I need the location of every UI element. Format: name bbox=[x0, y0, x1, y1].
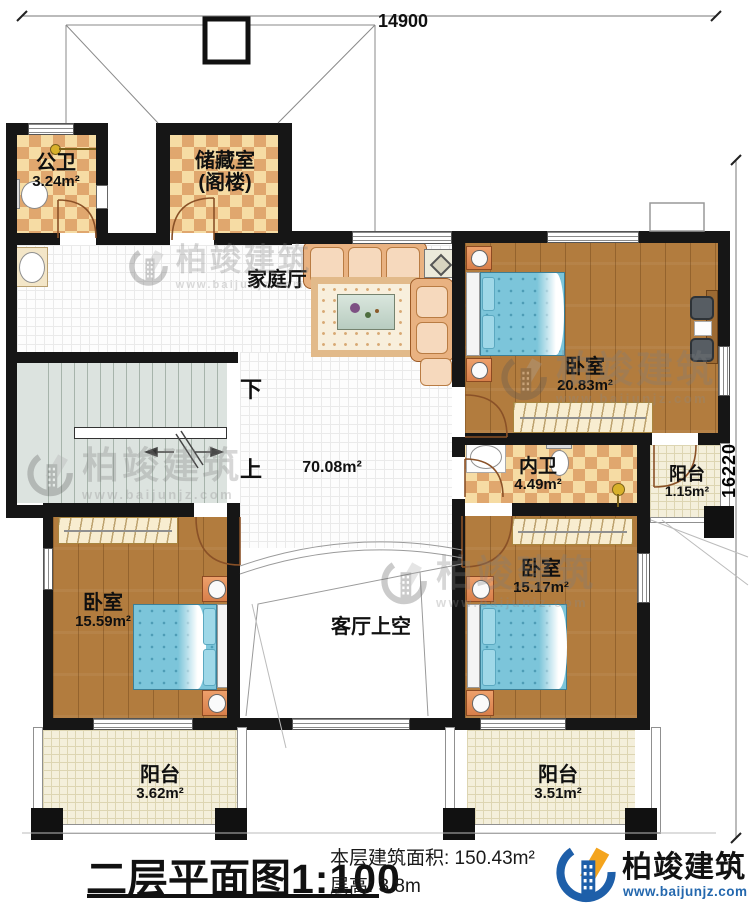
lamp-icon bbox=[208, 694, 226, 713]
door-opening bbox=[465, 503, 512, 516]
room-label-family-hall: 家庭厅 bbox=[230, 269, 324, 291]
lamp-icon bbox=[472, 694, 490, 713]
room-name: 卧室 bbox=[498, 558, 584, 580]
room-area: 15.17m² bbox=[498, 580, 584, 597]
wall bbox=[227, 503, 240, 730]
column bbox=[704, 506, 734, 538]
wall bbox=[637, 516, 650, 718]
nightstand bbox=[202, 576, 230, 602]
hall-area-label: 70.08m² bbox=[294, 459, 370, 477]
pillow bbox=[482, 608, 496, 645]
room-name: 储藏室 bbox=[172, 150, 278, 172]
room-label-public-bath: 公卫 3.24m² bbox=[14, 152, 98, 191]
bed-blanket-fold bbox=[537, 273, 564, 355]
floor-area-text: 本层建筑面积: 150.43m² bbox=[330, 843, 535, 870]
room-name: 阳台 bbox=[652, 464, 722, 484]
wardrobe bbox=[513, 402, 653, 433]
window bbox=[637, 553, 650, 603]
nightstand bbox=[466, 246, 492, 270]
room-label-balcony-bottomright: 阳台 3.51m² bbox=[524, 764, 592, 803]
wall bbox=[452, 516, 465, 730]
bed-headboard bbox=[466, 272, 480, 356]
room-area: 4.49m² bbox=[500, 477, 576, 494]
wardrobe bbox=[512, 518, 633, 545]
paper-holder-arm bbox=[59, 148, 96, 150]
wall bbox=[452, 499, 465, 516]
room-name: 内卫 bbox=[500, 456, 576, 477]
nightstand bbox=[466, 690, 494, 716]
brand-name: 柏竣建筑 bbox=[622, 842, 746, 886]
room-label-inner-bath: 内卫 4.49m² bbox=[500, 456, 576, 494]
wall bbox=[718, 231, 730, 433]
room-name: 卧室 bbox=[542, 356, 628, 378]
accessory-stem bbox=[617, 494, 619, 507]
room-name-sub: (阁楼) bbox=[172, 172, 278, 194]
pillow bbox=[482, 315, 495, 349]
wall bbox=[156, 123, 292, 135]
dormer bbox=[650, 203, 704, 231]
bed-blanket-fold bbox=[539, 605, 567, 689]
brand-url: www.baijunjz.com bbox=[623, 884, 748, 899]
side-table bbox=[694, 321, 712, 336]
chair bbox=[690, 338, 714, 362]
room-area: 20.83m² bbox=[542, 378, 628, 395]
room-label-storage: 储藏室 (阁楼) bbox=[172, 150, 278, 195]
window bbox=[43, 548, 53, 590]
wall bbox=[452, 231, 465, 387]
window bbox=[28, 123, 74, 135]
dimension-right-value: 16220 bbox=[720, 442, 741, 497]
sliding-door bbox=[93, 718, 193, 730]
room-label-living-void: 客厅上空 bbox=[316, 616, 426, 638]
wall bbox=[6, 352, 17, 518]
wall bbox=[292, 231, 354, 244]
wall bbox=[43, 503, 194, 517]
room-label-bedroom-bottomleft: 卧室 15.59m² bbox=[60, 592, 146, 631]
window bbox=[547, 231, 639, 243]
wall bbox=[6, 245, 17, 352]
pillow bbox=[482, 277, 495, 311]
wardrobe bbox=[58, 517, 178, 544]
wall bbox=[6, 505, 43, 518]
room-area: 1.15m² bbox=[652, 484, 722, 500]
room-name: 公卫 bbox=[14, 152, 98, 174]
room-label-balcony-bottomleft: 阳台 3.62m² bbox=[126, 764, 194, 803]
railing-window bbox=[292, 718, 410, 730]
nightstand bbox=[202, 690, 230, 716]
stair-handrail bbox=[74, 427, 227, 439]
bed-blanket-fold bbox=[178, 605, 206, 689]
room-area: 3.62m² bbox=[126, 786, 194, 803]
chair bbox=[690, 296, 714, 320]
column bbox=[443, 808, 475, 840]
floor-plan: 14900 16220 公卫 3.24m² 储藏室 (阁楼) 家庭厅 70.08… bbox=[0, 0, 750, 907]
brand-logo bbox=[550, 836, 622, 907]
room-area: 15.59m² bbox=[60, 614, 146, 631]
wall bbox=[278, 123, 292, 245]
pillow bbox=[482, 649, 496, 686]
watermark-logo-icon bbox=[380, 554, 430, 610]
flower-decor-icon bbox=[350, 303, 360, 313]
room-area: 3.51m² bbox=[524, 786, 592, 803]
column bbox=[31, 808, 63, 840]
room-area: 70.08m² bbox=[294, 459, 370, 477]
room-label-bedroom-topright: 卧室 20.83m² bbox=[542, 356, 628, 395]
lamp-icon bbox=[471, 362, 488, 379]
wall bbox=[465, 433, 637, 445]
nightstand bbox=[466, 358, 492, 382]
room-name: 客厅上空 bbox=[316, 616, 426, 638]
wall bbox=[452, 437, 465, 457]
column bbox=[625, 808, 657, 840]
lamp-icon bbox=[208, 580, 226, 599]
room-name: 卧室 bbox=[60, 592, 146, 614]
room-label-bedroom-bottomright: 卧室 15.17m² bbox=[498, 558, 584, 597]
wall bbox=[637, 445, 650, 503]
sink-icon bbox=[470, 445, 502, 469]
sink-icon bbox=[19, 252, 45, 283]
pillow bbox=[203, 608, 216, 645]
floor-height-text: 层高: 3.8m bbox=[330, 871, 421, 898]
tv-cabinet bbox=[424, 249, 454, 278]
lamp-icon bbox=[472, 580, 490, 599]
column bbox=[215, 808, 247, 840]
armchair bbox=[420, 358, 452, 386]
stairs-down-label: 下 bbox=[237, 378, 265, 403]
window bbox=[718, 346, 730, 396]
lamp-icon bbox=[471, 250, 488, 267]
wall bbox=[156, 123, 170, 245]
sofa-cushion bbox=[416, 322, 448, 354]
bed-headboard bbox=[467, 604, 480, 688]
dimension-top: 14900 bbox=[378, 11, 428, 32]
wall bbox=[6, 233, 60, 245]
room-name: 阳台 bbox=[126, 764, 194, 786]
chimney bbox=[205, 19, 248, 62]
room-name: 阳台 bbox=[524, 764, 592, 786]
stairs-up-label: 上 bbox=[237, 458, 265, 483]
wall bbox=[43, 503, 53, 730]
nightstand bbox=[466, 576, 494, 602]
room-label-balcony-right: 阳台 1.15m² bbox=[652, 464, 722, 500]
sofa-cushion bbox=[416, 286, 448, 318]
window bbox=[352, 231, 452, 244]
pillow bbox=[203, 649, 216, 686]
wall bbox=[6, 352, 238, 363]
room-name: 家庭厅 bbox=[230, 269, 324, 291]
door-opening bbox=[652, 433, 698, 445]
room-area: 3.24m² bbox=[14, 174, 98, 191]
coffee-table bbox=[337, 294, 395, 330]
wall bbox=[214, 233, 292, 245]
sliding-door bbox=[480, 718, 566, 730]
